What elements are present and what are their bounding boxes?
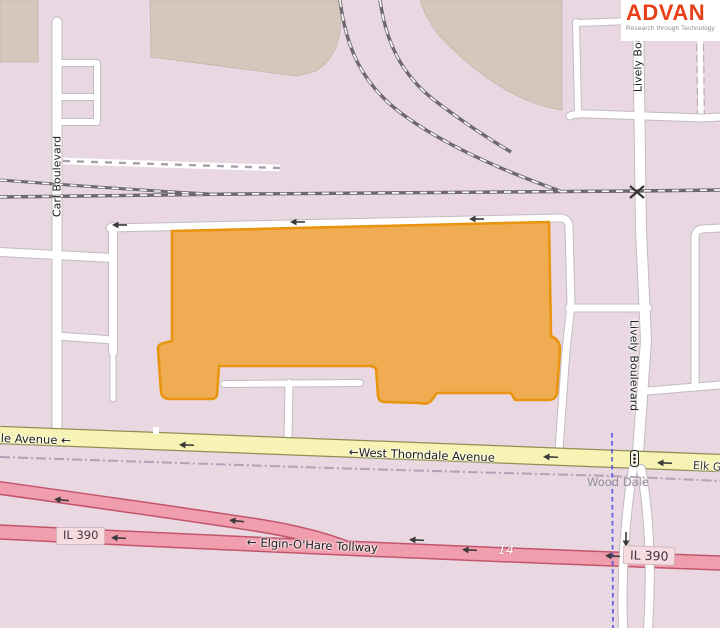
oneway-arrow-glyph: ← [349,445,360,459]
construction-road [700,33,701,116]
route-shield-il390: IL 390 [56,527,105,545]
street-label-lively-boulevard: Lively Boulevard [629,311,640,421]
route-shield-il390: IL 390 [623,545,676,566]
route-label-14: 14 [498,542,515,558]
place-label-wood-dale: Wood Dale [587,477,649,489]
advan-logo: ADVAN Research through Technology [621,0,720,41]
map[interactable]: Carl Boulevard Lively Boulevard Lively B… [0,0,720,628]
street-label-carl-boulevard: Carl Boulevard [52,127,63,227]
advan-logo-tagline: Research through Technology [626,25,720,32]
traffic-signal-icon [631,451,639,467]
map-canvas[interactable] [0,0,720,628]
oneway-arrow-glyph: ← [246,535,257,549]
street-label-elk-grove-cut: Elk Gr [693,460,720,473]
street-label-thorndale-cut: le Avenue ← [1,432,72,447]
oneway-arrow-glyph: ← [61,433,72,447]
advan-logo-text: ADVAN [626,1,720,25]
